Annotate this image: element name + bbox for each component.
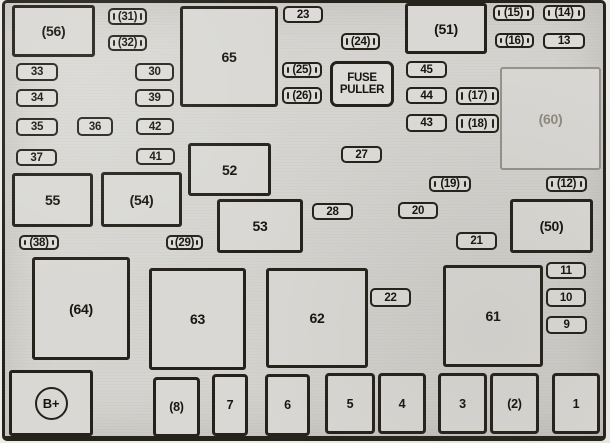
fuse-box-diagram: (56) 65 (51) (60) 52 55 (54) 53 (50) (64…: [0, 0, 610, 443]
fuse-29: (29): [166, 235, 203, 250]
fuse-35: 35: [16, 118, 58, 136]
relay-64-box: (64): [32, 257, 130, 360]
slot-6: 6: [265, 374, 310, 436]
fuse-42: 42: [136, 118, 174, 135]
fuse-19: (19): [429, 176, 471, 192]
relay-63-box: 63: [149, 268, 246, 370]
relay-52-box: 52: [188, 143, 271, 196]
relay-50-box: (50): [510, 199, 593, 253]
fuse-34: 34: [16, 89, 58, 107]
fuse-9: 9: [546, 316, 587, 334]
slot-3: 3: [438, 373, 487, 434]
fuse-13: 13: [543, 33, 585, 49]
fuse-11: 11: [546, 262, 586, 279]
fuse-25: (25): [282, 62, 322, 78]
relay-54-box: (54): [101, 172, 182, 227]
fuse-18: (18): [456, 114, 499, 133]
fuse-24: (24): [341, 33, 380, 50]
relay-61-box: 61: [443, 265, 543, 367]
fuse-33: 33: [16, 63, 58, 81]
slot-4: 4: [378, 373, 426, 434]
fuse-39: 39: [135, 89, 174, 107]
relay-62-box: 62: [266, 268, 368, 368]
fuse-27: 27: [341, 146, 382, 163]
relay-55-box: 55: [12, 173, 93, 227]
battery-plus-icon: B+: [35, 387, 68, 420]
fuse-22: 22: [370, 288, 411, 307]
relay-56-box: (56): [12, 5, 95, 57]
fuse-43: 43: [406, 114, 447, 132]
fuse-44: 44: [406, 87, 447, 104]
fuse-14: (14): [543, 5, 585, 21]
slot-7: 7: [212, 374, 248, 436]
fuse-10: 10: [546, 288, 586, 307]
fuse-21: 21: [456, 232, 497, 250]
fuse-12: (12): [546, 176, 587, 192]
fuse-36: 36: [77, 117, 113, 136]
fuse-31: (31): [108, 8, 147, 25]
relay-60-box: (60): [500, 67, 601, 170]
relay-51-box: (51): [405, 3, 487, 54]
fuse-38: (38): [19, 235, 59, 250]
battery-plus-label: B+: [43, 396, 59, 411]
slot-5: 5: [325, 373, 375, 434]
relay-53-box: 53: [217, 199, 303, 253]
slot-8: (8): [153, 377, 200, 437]
fuse-puller-box: FUSE PULLER: [330, 61, 394, 107]
relay-65-box: 65: [180, 6, 278, 107]
fuse-26: (26): [282, 87, 322, 104]
fuse-30: 30: [135, 63, 174, 81]
fuse-41: 41: [136, 148, 175, 165]
slot-2: (2): [490, 373, 539, 434]
fuse-17: (17): [456, 87, 499, 105]
fuse-37: 37: [16, 149, 57, 166]
fuse-45: 45: [406, 61, 447, 78]
fuse-32: (32): [108, 35, 147, 51]
fuse-15: (15): [493, 5, 534, 21]
battery-terminal-box: B+: [9, 370, 93, 436]
fuse-28: 28: [312, 203, 353, 220]
fuse-20: 20: [398, 202, 438, 219]
fuse-23: 23: [283, 6, 323, 23]
fuse-puller-label-line2: PULLER: [340, 84, 384, 96]
fuse-puller-label-line1: FUSE: [347, 72, 376, 84]
fuse-16: (16): [495, 33, 534, 48]
slot-1: 1: [552, 373, 600, 434]
